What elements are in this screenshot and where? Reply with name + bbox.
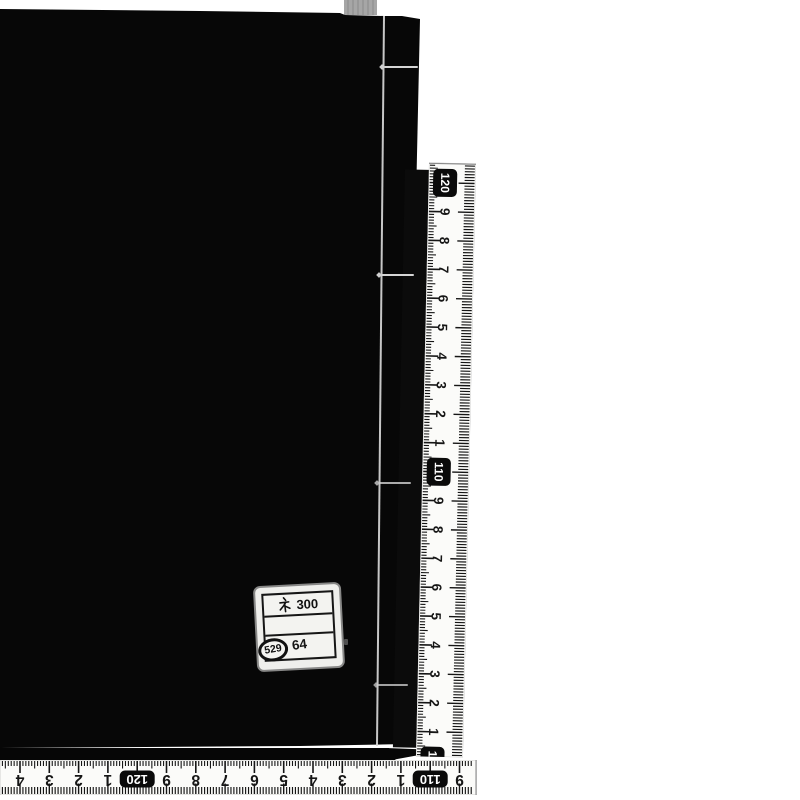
ruler-number: 7	[436, 266, 451, 274]
ruler-number: 100	[425, 751, 439, 772]
ruler-number: 9	[431, 497, 446, 505]
ruler-cm-box	[413, 771, 448, 788]
binding-stitch	[379, 482, 411, 484]
ruler-number: 1	[103, 771, 112, 788]
ruler-number: 9	[162, 771, 171, 788]
label-right-number: 64	[291, 636, 308, 653]
ruler-cm-box	[426, 458, 451, 487]
ruler-number: 5	[428, 612, 443, 620]
ruler-cm-box	[433, 169, 458, 198]
ruler-number: 2	[433, 410, 448, 418]
ruler-number: 4	[434, 352, 449, 360]
ruler-number: 4	[15, 771, 24, 788]
ruler-number: 2	[74, 771, 83, 788]
ruler-number: 8	[191, 771, 200, 788]
horizontal-ruler: 43211209876543211109	[0, 760, 477, 795]
ruler-number: 110	[431, 462, 445, 482]
label-circled-number: 529	[257, 636, 290, 663]
ruler-number: 1	[396, 771, 405, 788]
ruler-number: 5	[279, 771, 288, 788]
price-label: 300 529 64	[255, 584, 343, 670]
ruler-number: 8	[437, 237, 452, 245]
ruler-number: 9	[455, 771, 464, 788]
ruler-number: 5	[435, 323, 450, 331]
book-bottom-shadow	[0, 748, 389, 763]
ruler-number: 120	[126, 772, 148, 787]
ruler-number: 7	[221, 771, 230, 788]
binding-stitch	[381, 274, 414, 276]
binding-stitch	[384, 66, 418, 68]
ruler-number: 4	[428, 641, 443, 649]
ruler-number: 7	[430, 555, 445, 563]
label-number-row: 529 64	[265, 633, 334, 657]
ruler-cm-box	[120, 771, 155, 788]
ruler-number: 110	[420, 772, 441, 787]
ruler-number: 3	[45, 771, 54, 788]
dust-speck	[344, 639, 348, 645]
book-bottom-shadow-wedge	[386, 748, 433, 763]
ruler-number: 6	[429, 583, 444, 591]
ruler-number: 1	[426, 728, 441, 736]
ruler-number: 4	[308, 771, 317, 788]
ruler-number: 3	[434, 381, 449, 389]
katakana-ne-glyph	[277, 596, 292, 613]
photo-stage: 300 529 64 12098765432111098765432110043…	[0, 0, 800, 800]
book-top-tab	[344, 0, 377, 15]
ruler-number: 9	[437, 208, 452, 216]
binding-stitch	[378, 684, 408, 686]
ruler-number: 1	[432, 439, 447, 447]
ruler-number: 2	[367, 771, 376, 788]
ruler-number: 120	[438, 173, 452, 194]
ruler-number: 6	[250, 771, 259, 788]
label-price: 300	[296, 595, 318, 611]
ruler-number: 3	[338, 771, 347, 788]
ruler-number: 8	[430, 526, 445, 534]
ruler-number: 6	[435, 295, 450, 303]
ruler-number: 2	[427, 699, 442, 707]
ruler-number: 3	[427, 670, 442, 678]
label-frame: 300 529 64	[261, 590, 336, 662]
